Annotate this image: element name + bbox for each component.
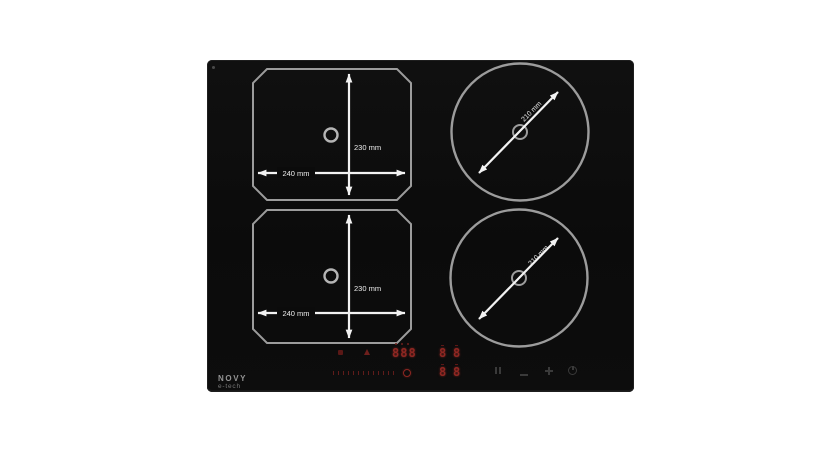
cooking-zones-graphic: 230 mm 240 mm 230 mm 240 mm 210 mm 210 — [207, 60, 634, 392]
zone-display-4: 8 — [453, 367, 461, 377]
brand-subline: e-tech — [218, 383, 247, 391]
zone-display-3: 8 — [439, 367, 447, 377]
heat-indicator-icon[interactable] — [364, 349, 370, 355]
zone-display-1: 8 — [439, 348, 447, 358]
plus-icon[interactable] — [544, 366, 554, 376]
round-zone-top-right: 210 mm — [452, 64, 589, 201]
timer-display: 888 — [392, 348, 417, 358]
power-slider-scale[interactable] — [333, 371, 397, 375]
flex-zone-bottom-left: 230 mm 240 mm — [253, 210, 411, 343]
flex-zone-outline — [253, 210, 411, 343]
minus-icon[interactable] — [519, 370, 529, 380]
pan-detect-icon — [403, 369, 411, 377]
round-zone-bottom-right: 210 mm — [451, 210, 588, 347]
power-icon[interactable] — [568, 366, 577, 375]
height-dimension-label: 230 mm — [354, 143, 381, 152]
flex-zone-top-left: 230 mm 240 mm — [253, 69, 411, 200]
zone-display-2: 8 — [453, 348, 461, 358]
flex-zone-outline — [253, 69, 411, 200]
induction-hob: 230 mm 240 mm 230 mm 240 mm 210 mm 210 — [207, 60, 634, 392]
timer-dots — [395, 343, 413, 345]
pause-icon[interactable] — [493, 366, 503, 376]
pan-center-ring — [325, 270, 338, 283]
width-dimension-label: 240 mm — [282, 309, 309, 318]
width-dimension-label: 240 mm — [282, 169, 309, 178]
brand-name: NOVY — [218, 375, 247, 383]
timer-indicator-icon[interactable] — [338, 350, 343, 355]
brand-logo: NOVY e-tech — [218, 375, 247, 391]
height-dimension-label: 230 mm — [354, 284, 381, 293]
diameter-dimension-arrow — [479, 92, 558, 173]
diameter-dimension-label: 210 mm — [528, 244, 551, 267]
pan-center-ring — [325, 129, 338, 142]
